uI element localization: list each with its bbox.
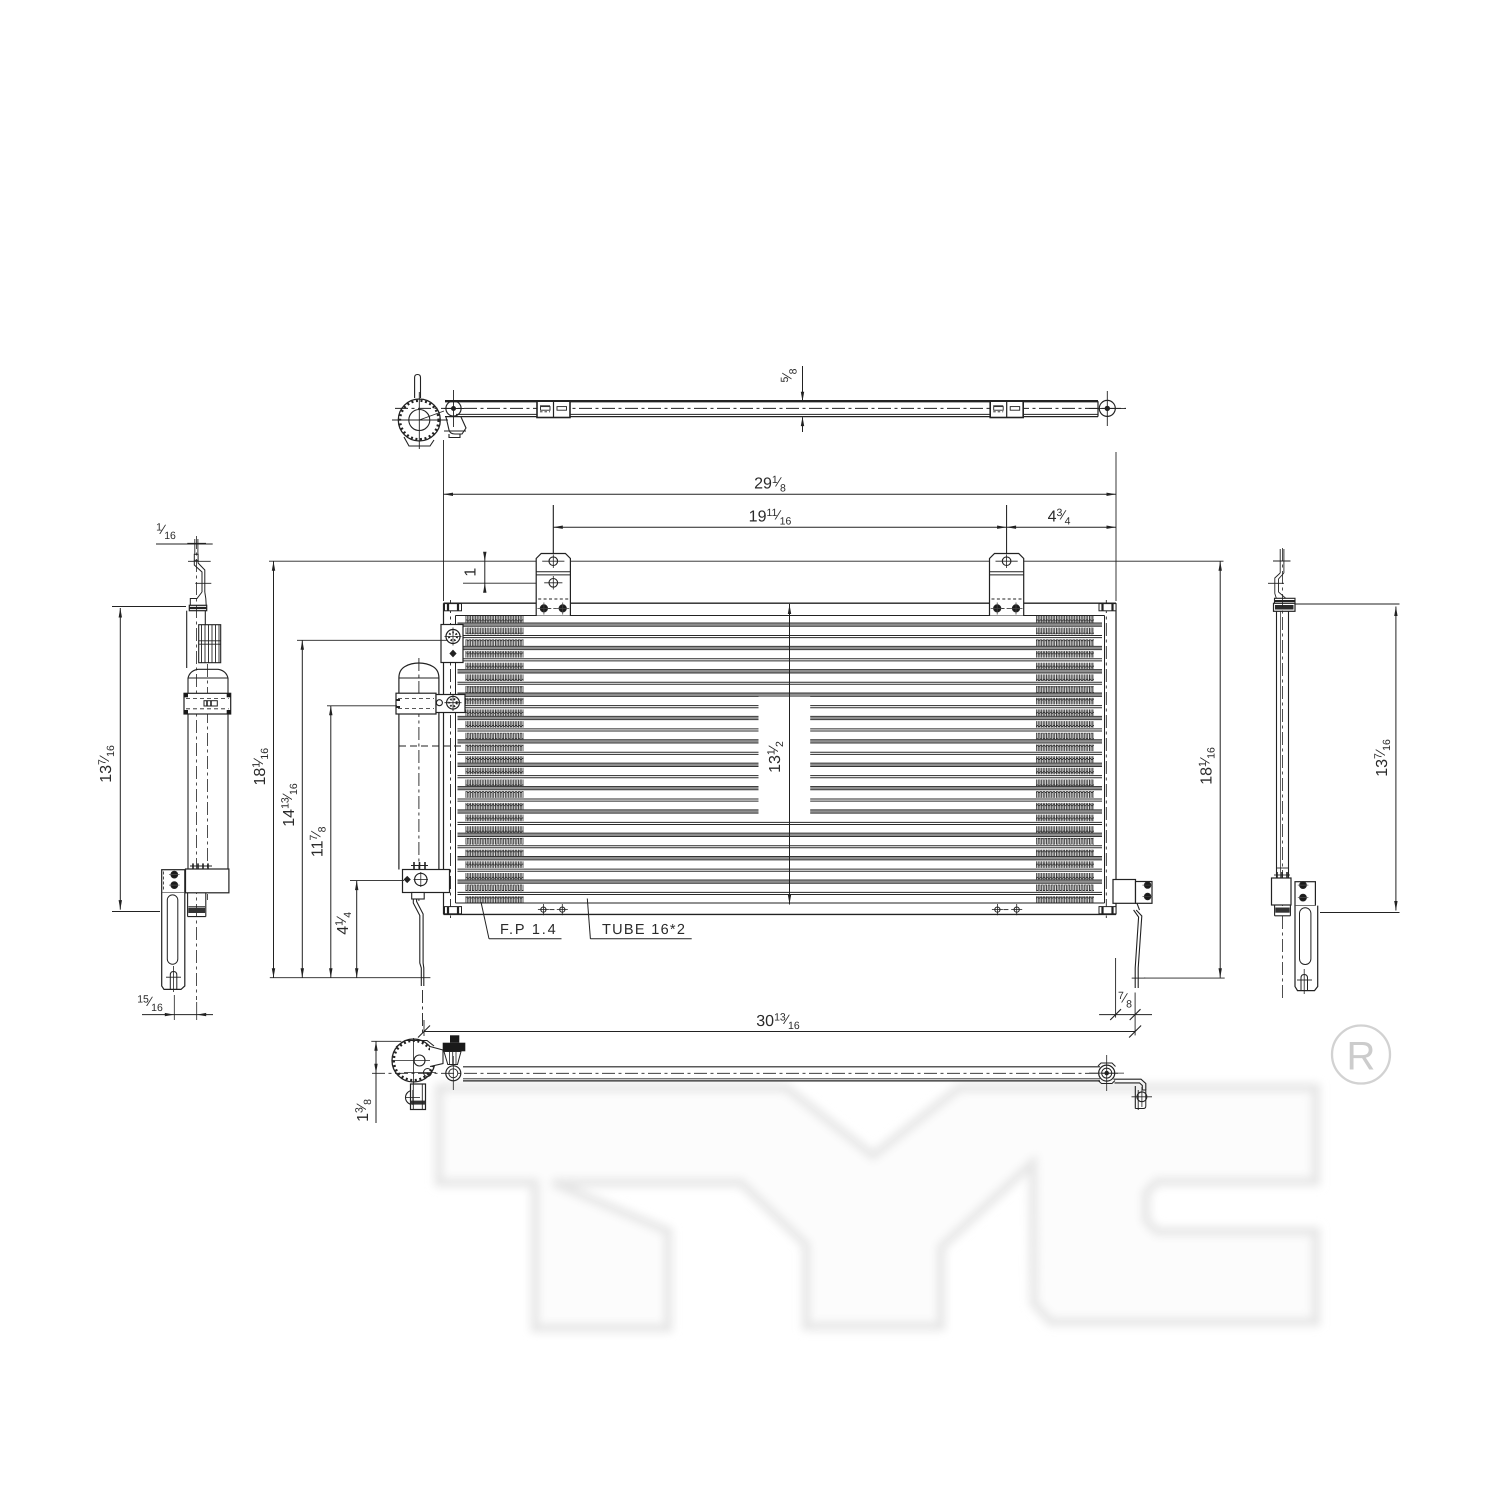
- svg-text:F.P 1.4: F.P 1.4: [500, 922, 557, 938]
- svg-text:TUBE 16*2: TUBE 16*2: [602, 922, 686, 938]
- svg-text:R: R: [1347, 1035, 1376, 1079]
- svg-text:1: 1: [463, 568, 480, 577]
